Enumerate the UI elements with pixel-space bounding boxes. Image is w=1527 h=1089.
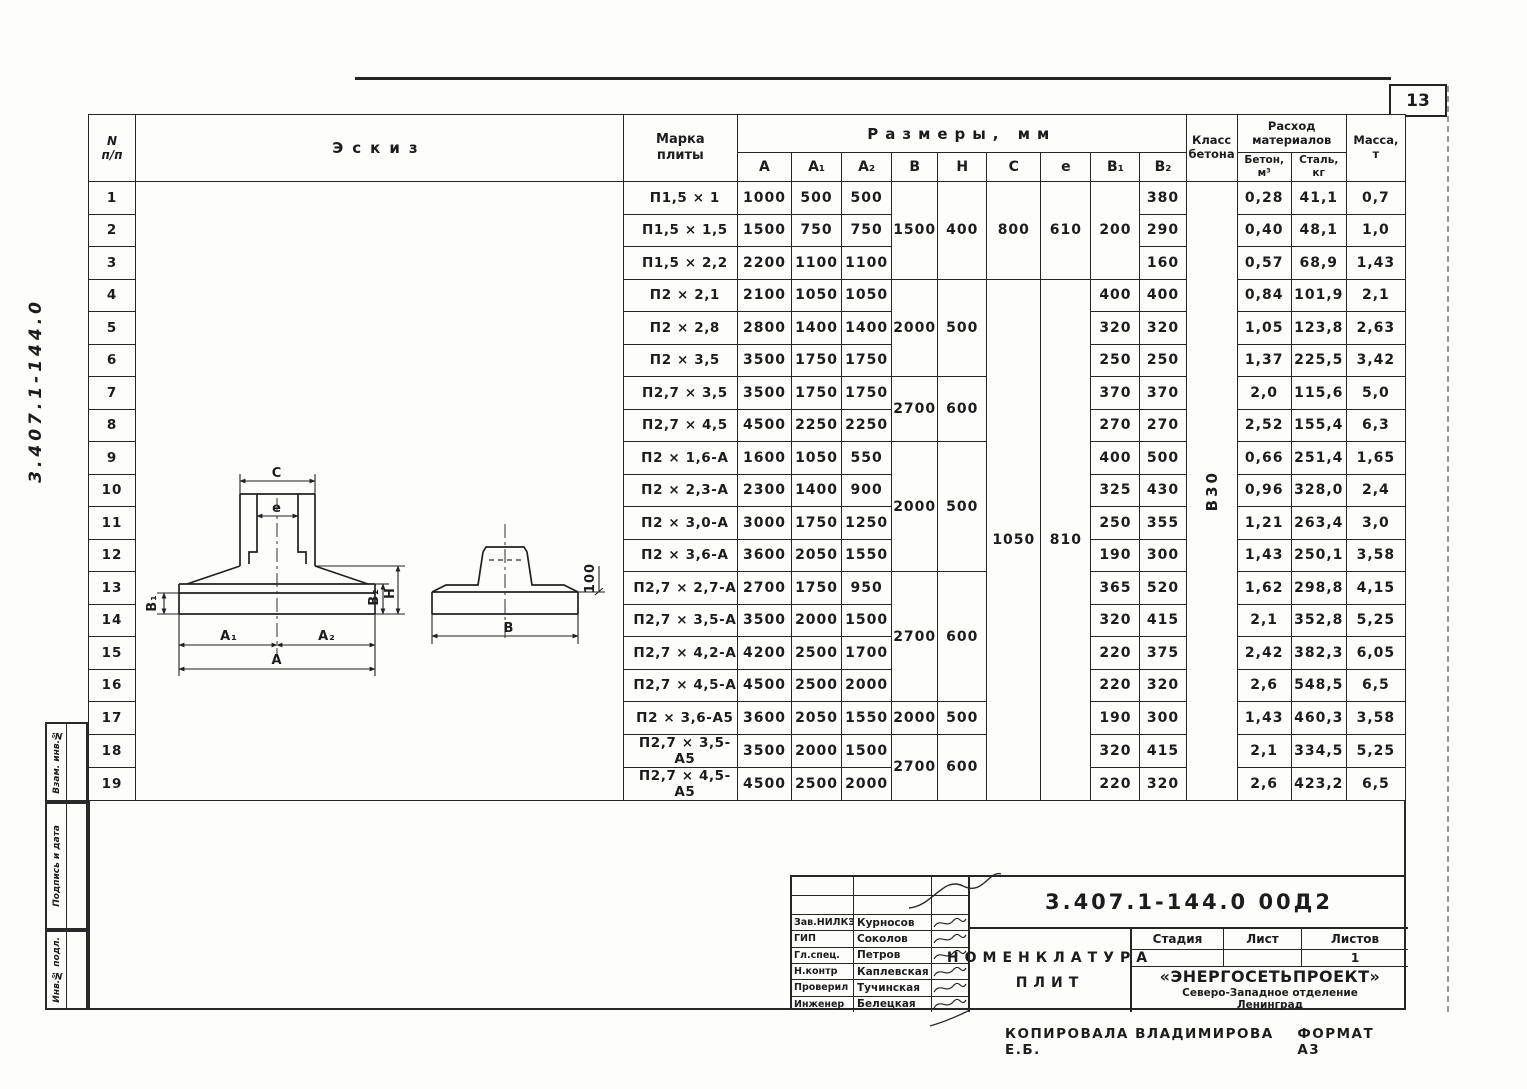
dim-a: 3500 <box>737 604 791 637</box>
col-header-mass-line2: т <box>1347 148 1405 162</box>
dim-label-h: Н <box>383 587 398 599</box>
side-document-code: 3.407.1-144.0 <box>26 280 46 500</box>
concrete-volume: 2,52 <box>1237 409 1291 442</box>
col-header-concrete-volume: Бетон, м³ <box>1237 153 1291 182</box>
signature-row: Гл.спец.Петров <box>792 948 968 964</box>
signer-role: Инженер <box>792 997 854 1012</box>
dim-label-b2: В₂ <box>367 588 382 606</box>
dim-b1: 320 <box>1091 734 1140 767</box>
dim-b2: 355 <box>1140 507 1186 540</box>
plate-mark: П2,7 × 4,5-А <box>623 669 737 702</box>
side-profile-sketch: В 100 <box>432 524 605 644</box>
signer-name: Курносов <box>854 915 932 930</box>
dim-a: 2700 <box>737 572 791 605</box>
dim-b1: 220 <box>1091 637 1140 670</box>
dim-a: 4500 <box>737 767 791 800</box>
scanned-sheet: { "page": { "sheet_number": "13", "side_… <box>0 0 1527 1089</box>
plate-mark: П2 × 1,6-А <box>623 442 737 475</box>
dim-b2: 415 <box>1140 604 1186 637</box>
concrete-volume: 2,6 <box>1237 669 1291 702</box>
row-number: 6 <box>89 344 136 377</box>
signature-row: Зав.НИЛКЭКурносов <box>792 915 968 931</box>
dim-a2: 1500 <box>842 734 892 767</box>
dim-b2: 430 <box>1140 474 1186 507</box>
dim-c: 800 <box>987 182 1041 280</box>
signer-name: Соколов <box>854 931 932 946</box>
dim-b2: 300 <box>1140 702 1186 735</box>
col-header-mark: Марка плиты <box>623 115 737 182</box>
stamp-blank <box>67 804 86 928</box>
steel-weight: 298,8 <box>1291 572 1346 605</box>
col-header-mark-line2: плиты <box>624 148 737 164</box>
col-header-e: е <box>1041 153 1091 182</box>
dim-b2: 415 <box>1140 734 1186 767</box>
dim-a: 4500 <box>737 409 791 442</box>
steel-weight: 334,5 <box>1291 734 1346 767</box>
col-header-concrete-line1: Бетон, <box>1238 154 1291 167</box>
plate-mark: П2 × 3,6-А5 <box>623 702 737 735</box>
steel-weight: 41,1 <box>1291 182 1346 215</box>
dim-label-a: А <box>272 653 283 668</box>
stamp-blank <box>67 724 86 800</box>
col-header-num-line2: п/п <box>89 148 135 162</box>
steel-weight: 48,1 <box>1291 214 1346 247</box>
mass: 3,58 <box>1346 702 1405 735</box>
plate-mark: П2,7 × 3,5-А <box>623 604 737 637</box>
document-title: Номенклатура плит <box>970 929 1132 1012</box>
col-header-steel-line1: Сталь, <box>1292 154 1346 167</box>
plate-mark: П2 × 3,5 <box>623 344 737 377</box>
col-header-mark-line1: Марка <box>624 132 737 148</box>
signature-scribble <box>932 915 968 930</box>
cross-section-sketch: С е В₁ <box>145 466 405 676</box>
concrete-volume: 1,43 <box>1237 702 1291 735</box>
side-code-text: 3.407.1-144.0 <box>26 298 46 483</box>
dim-a2: 750 <box>842 214 892 247</box>
concrete-volume: 0,28 <box>1237 182 1291 215</box>
steel-weight: 328,0 <box>1291 474 1346 507</box>
mass: 6,5 <box>1346 767 1405 800</box>
row-number: 19 <box>89 767 136 800</box>
dim-a: 4200 <box>737 637 791 670</box>
plate-mark: П2,7 × 3,5-А5 <box>623 734 737 767</box>
dim-a1: 2500 <box>792 767 842 800</box>
sheets-label: Листов <box>1302 929 1408 949</box>
dim-a: 3500 <box>737 377 791 410</box>
row-number: 1 <box>89 182 136 215</box>
document-number: 3.407.1-144.0 00Д2 <box>970 877 1408 929</box>
col-header-b: В <box>892 153 938 182</box>
col-header-num: N п/п <box>89 115 136 182</box>
signer-role: Гл.спец. <box>792 948 854 963</box>
dim-a: 3500 <box>737 734 791 767</box>
dim-a1: 1750 <box>792 344 842 377</box>
mass: 3,42 <box>1346 344 1405 377</box>
page-number: 13 <box>1406 91 1430 111</box>
dim-a2: 1050 <box>842 279 892 312</box>
steel-weight: 263,4 <box>1291 507 1346 540</box>
concrete-volume: 0,96 <box>1237 474 1291 507</box>
dim-b2: 250 <box>1140 344 1186 377</box>
page-number-box: 13 <box>1389 84 1447 117</box>
plate-mark: П2 × 2,3-А <box>623 474 737 507</box>
dim-a: 1500 <box>737 214 791 247</box>
signature-row: ПроверилТучинская <box>792 980 968 996</box>
concrete-volume: 2,42 <box>1237 637 1291 670</box>
col-header-num-line1: N <box>89 134 135 148</box>
dim-a1: 1750 <box>792 572 842 605</box>
dim-h: 500 <box>938 442 987 572</box>
dim-b1: 400 <box>1091 279 1140 312</box>
stage-label: Стадия <box>1132 929 1224 949</box>
concrete-volume: 1,05 <box>1237 312 1291 345</box>
dim-b2: 520 <box>1140 572 1186 605</box>
dim-a1: 1400 <box>792 474 842 507</box>
mass: 6,05 <box>1346 637 1405 670</box>
row-number: 15 <box>89 637 136 670</box>
dim-b1: 365 <box>1091 572 1140 605</box>
stamp-blank <box>67 932 86 1008</box>
dim-label-a1: А₁ <box>221 629 239 644</box>
signature-row: ГИПСоколов <box>792 931 968 947</box>
dim-a2: 2000 <box>842 767 892 800</box>
signature-row: Н.контрКаплевская <box>792 964 968 980</box>
sheet-top-rule <box>355 77 1391 80</box>
dim-a2: 1700 <box>842 637 892 670</box>
dim-a2: 1500 <box>842 604 892 637</box>
dim-a: 1600 <box>737 442 791 475</box>
dim-a1: 500 <box>792 182 842 215</box>
dim-b2: 380 <box>1140 182 1186 215</box>
stamp-label: Инв.№ подл. <box>47 932 67 1008</box>
mass: 1,65 <box>1346 442 1405 475</box>
dim-b: 2000 <box>892 442 938 572</box>
dim-c: 1050 <box>987 279 1041 800</box>
plate-mark: П2 × 2,1 <box>623 279 737 312</box>
plate-sketches: С е В₁ <box>136 464 623 714</box>
dim-label-a2: А₂ <box>319 629 337 644</box>
steel-weight: 460,3 <box>1291 702 1346 735</box>
dim-b: 2700 <box>892 734 938 800</box>
dim-b2: 320 <box>1140 312 1186 345</box>
dim-b1: 200 <box>1091 182 1140 280</box>
dim-b2: 290 <box>1140 214 1186 247</box>
dim-a2: 2250 <box>842 409 892 442</box>
col-header-concrete-class: Класс бетона <box>1186 115 1237 182</box>
row-number: 9 <box>89 442 136 475</box>
dim-a1: 2000 <box>792 604 842 637</box>
table-row: 1 С е <box>89 182 1406 215</box>
dim-a2: 900 <box>842 474 892 507</box>
mass: 6,5 <box>1346 669 1405 702</box>
dim-a: 2200 <box>737 247 791 280</box>
plate-mark: П2 × 2,8 <box>623 312 737 345</box>
steel-weight: 382,3 <box>1291 637 1346 670</box>
concrete-volume: 0,40 <box>1237 214 1291 247</box>
sketch-cell: С е В₁ <box>136 182 624 801</box>
dim-h: 500 <box>938 279 987 377</box>
steel-weight: 123,8 <box>1291 312 1346 345</box>
concrete-volume: 1,43 <box>1237 539 1291 572</box>
dim-b1: 320 <box>1091 604 1140 637</box>
mass: 5,25 <box>1346 734 1405 767</box>
format-text: Формат А3 <box>1297 1026 1397 1058</box>
row-number: 5 <box>89 312 136 345</box>
signer-name: Каплевская <box>854 964 932 979</box>
plate-mark: П1,5 × 1 <box>623 182 737 215</box>
concrete-volume: 1,62 <box>1237 572 1291 605</box>
dim-b1: 190 <box>1091 702 1140 735</box>
mass: 1,0 <box>1346 214 1405 247</box>
concrete-class-cell: В30 <box>1186 182 1237 801</box>
steel-weight: 101,9 <box>1291 279 1346 312</box>
dim-a1: 2500 <box>792 637 842 670</box>
dim-a2: 1750 <box>842 344 892 377</box>
plate-mark: П2,7 × 3,5 <box>623 377 737 410</box>
mass: 5,0 <box>1346 377 1405 410</box>
dim-a2: 950 <box>842 572 892 605</box>
signature-scribble <box>932 931 968 946</box>
dim-h: 600 <box>938 734 987 800</box>
dim-a2: 1550 <box>842 702 892 735</box>
copied-by-text: Копировала Владимирова Е.Б. <box>1005 1026 1297 1058</box>
stamp-label: Подпись и дата <box>47 804 67 928</box>
dim-label-b1: В₁ <box>145 594 160 612</box>
dim-a1: 1050 <box>792 442 842 475</box>
stage-value <box>1132 950 1224 966</box>
organization-block: «Энергосетьпроект» Северо-Западное отдел… <box>1132 967 1408 1012</box>
plate-mark: П1,5 × 2,2 <box>623 247 737 280</box>
dim-a2: 1100 <box>842 247 892 280</box>
signer-name: Петров <box>854 948 932 963</box>
dim-a1: 2050 <box>792 702 842 735</box>
signer-role <box>792 896 854 914</box>
dim-a: 2800 <box>737 312 791 345</box>
dim-e: 810 <box>1041 279 1091 800</box>
plate-mark: П1,5 × 1,5 <box>623 214 737 247</box>
plate-mark: П2,7 × 2,7-А <box>623 572 737 605</box>
row-number: 13 <box>89 572 136 605</box>
col-header-mass-line1: Масса, <box>1347 134 1405 148</box>
plate-mark: П2 × 3,6-А <box>623 539 737 572</box>
dim-a1: 1050 <box>792 279 842 312</box>
concrete-volume: 0,84 <box>1237 279 1291 312</box>
steel-weight: 423,2 <box>1291 767 1346 800</box>
steel-weight: 225,5 <box>1291 344 1346 377</box>
dim-h: 400 <box>938 182 987 280</box>
steel-weight: 352,8 <box>1291 604 1346 637</box>
dim-e: 610 <box>1041 182 1091 280</box>
dim-a1: 2500 <box>792 669 842 702</box>
stamp-label-text: Инв.№ подл. <box>52 937 62 1003</box>
col-header-a1: А₁ <box>792 153 842 182</box>
organization-city: Ленинград <box>1237 999 1303 1011</box>
mass: 3,58 <box>1346 539 1405 572</box>
dim-b1: 325 <box>1091 474 1140 507</box>
dim-a1: 1750 <box>792 507 842 540</box>
col-header-steel-weight: Сталь, кг <box>1291 153 1346 182</box>
signer-role: ГИП <box>792 931 854 946</box>
dim-a1: 2250 <box>792 409 842 442</box>
dim-a: 3600 <box>737 702 791 735</box>
mass: 5,25 <box>1346 604 1405 637</box>
dim-a: 1000 <box>737 182 791 215</box>
dim-a2: 1250 <box>842 507 892 540</box>
col-header-b2: В₂ <box>1140 153 1186 182</box>
dim-a1: 750 <box>792 214 842 247</box>
stamp-box-inv: Инв.№ подл. <box>45 930 88 1010</box>
stamp-label: Взам. инв.№ <box>47 724 67 800</box>
col-header-class-line2: бетона <box>1187 148 1237 162</box>
page-edge-dashed-line <box>1447 86 1449 1012</box>
dim-h: 500 <box>938 702 987 735</box>
mass: 4,15 <box>1346 572 1405 605</box>
stamp-label-text: Подпись и дата <box>52 825 62 907</box>
col-header-mass: Масса, т <box>1346 115 1405 182</box>
col-header-materials: Расход материалов <box>1237 115 1346 153</box>
sheet-value <box>1224 950 1302 966</box>
dim-b: 2000 <box>892 279 938 377</box>
dim-a: 3600 <box>737 539 791 572</box>
col-header-class-line1: Класс <box>1187 134 1237 148</box>
col-header-a: А <box>737 153 791 182</box>
dim-a: 4500 <box>737 669 791 702</box>
mass: 3,0 <box>1346 507 1405 540</box>
row-number: 14 <box>89 604 136 637</box>
dim-b1: 400 <box>1091 442 1140 475</box>
dim-a1: 1750 <box>792 377 842 410</box>
dim-a1: 1100 <box>792 247 842 280</box>
concrete-volume: 1,37 <box>1237 344 1291 377</box>
plate-nomenclature-table: N п/п Эскиз Марка плиты Размеры, мм Клас… <box>88 114 1406 801</box>
stamp-label-text: Взам. инв.№ <box>52 730 62 794</box>
dim-b2: 300 <box>1140 539 1186 572</box>
row-number: 7 <box>89 377 136 410</box>
concrete-volume: 2,1 <box>1237 604 1291 637</box>
signer-role <box>792 877 854 895</box>
dim-a2: 1550 <box>842 539 892 572</box>
steel-weight: 251,4 <box>1291 442 1346 475</box>
stamp-box-podpis: Подпись и дата <box>45 802 88 930</box>
signer-role: Зав.НИЛКЭ <box>792 915 854 930</box>
mass: 2,63 <box>1346 312 1405 345</box>
dim-b: 2700 <box>892 377 938 442</box>
dim-a: 3500 <box>737 344 791 377</box>
dim-b2: 160 <box>1140 247 1186 280</box>
row-number: 8 <box>89 409 136 442</box>
dim-b1: 320 <box>1091 312 1140 345</box>
signer-name: Тучинская <box>854 980 932 995</box>
plate-mark: П2,7 × 4,5 <box>623 409 737 442</box>
dim-h: 600 <box>938 572 987 702</box>
dim-a2: 1400 <box>842 312 892 345</box>
dim-b2: 320 <box>1140 669 1186 702</box>
steel-weight: 155,4 <box>1291 409 1346 442</box>
dim-label-edge-100: 100 <box>583 563 598 593</box>
dim-b2: 370 <box>1140 377 1186 410</box>
col-header-materials-line1: Расход <box>1238 120 1346 134</box>
document-title-line1: Номенклатура <box>947 950 1153 966</box>
col-header-h: Н <box>938 153 987 182</box>
dim-label-c: С <box>272 466 283 481</box>
dim-a2: 2000 <box>842 669 892 702</box>
mass: 0,7 <box>1346 182 1405 215</box>
dim-a1: 2000 <box>792 734 842 767</box>
dim-a: 2100 <box>737 279 791 312</box>
steel-weight: 115,6 <box>1291 377 1346 410</box>
row-number: 10 <box>89 474 136 507</box>
dim-b2: 500 <box>1140 442 1186 475</box>
stamp-box-vzam: Взам. инв.№ <box>45 722 88 802</box>
concrete-class-value: В30 <box>1203 470 1221 511</box>
document-title-line2: плит <box>1016 975 1085 991</box>
steel-weight: 548,5 <box>1291 669 1346 702</box>
row-number: 3 <box>89 247 136 280</box>
signature-scribble <box>932 980 968 995</box>
title-block: Зав.НИЛКЭКурносовГИПСоколовГл.спец.Петро… <box>790 875 1406 1010</box>
handwritten-scribble <box>905 866 1005 912</box>
dim-b2: 320 <box>1140 767 1186 800</box>
dim-a: 2300 <box>737 474 791 507</box>
dim-b: 2000 <box>892 702 938 735</box>
col-header-steel-line2: кг <box>1292 167 1346 180</box>
dim-b1: 220 <box>1091 669 1140 702</box>
mass: 6,3 <box>1346 409 1405 442</box>
col-header-sizes: Размеры, мм <box>737 115 1186 153</box>
plate-section-drawings: С е В₁ <box>137 464 621 714</box>
signer-name: Белецкая <box>854 997 932 1012</box>
dim-a1: 2050 <box>792 539 842 572</box>
dim-a1: 1400 <box>792 312 842 345</box>
plate-mark: П2 × 3,0-А <box>623 507 737 540</box>
organization-branch: Северо-Западное отделение <box>1182 987 1358 999</box>
stage-header-row: Стадия Лист Листов <box>1132 929 1408 950</box>
dim-b1: 250 <box>1091 344 1140 377</box>
concrete-volume: 2,0 <box>1237 377 1291 410</box>
col-header-c: С <box>987 153 1041 182</box>
mass: 2,4 <box>1346 474 1405 507</box>
handwritten-scribble <box>928 1008 972 1028</box>
dim-b1: 250 <box>1091 507 1140 540</box>
dim-a2: 550 <box>842 442 892 475</box>
stage-value-row: 1 <box>1132 950 1408 967</box>
col-header-concrete-line2: м³ <box>1238 167 1291 180</box>
mass: 1,43 <box>1346 247 1405 280</box>
row-number: 17 <box>89 702 136 735</box>
title-block-right: Стадия Лист Листов 1 «Энергосетьпроект» … <box>1132 929 1408 1012</box>
dim-b1: 220 <box>1091 767 1140 800</box>
dim-label-b: В <box>504 621 515 636</box>
dim-a2: 1750 <box>842 377 892 410</box>
col-header-sketch: Эскиз <box>136 115 624 182</box>
steel-weight: 250,1 <box>1291 539 1346 572</box>
signature-scribble <box>932 964 968 979</box>
dim-b2: 400 <box>1140 279 1186 312</box>
col-header-a2: А₂ <box>842 153 892 182</box>
sheet-background: 13 3.407.1-144.0 Взам. инв.№ Подпись и д… <box>0 0 1527 1089</box>
dim-a: 3000 <box>737 507 791 540</box>
concrete-volume: 1,21 <box>1237 507 1291 540</box>
footer-caption: Копировала Владимирова Е.Б. Формат А3 <box>1005 1026 1397 1058</box>
row-number: 18 <box>89 734 136 767</box>
row-number: 16 <box>89 669 136 702</box>
mass: 2,1 <box>1346 279 1405 312</box>
plate-mark: П2,7 × 4,5-А5 <box>623 767 737 800</box>
row-number: 12 <box>89 539 136 572</box>
concrete-volume: 2,6 <box>1237 767 1291 800</box>
plate-mark: П2,7 × 4,2-А <box>623 637 737 670</box>
dim-b2: 375 <box>1140 637 1186 670</box>
